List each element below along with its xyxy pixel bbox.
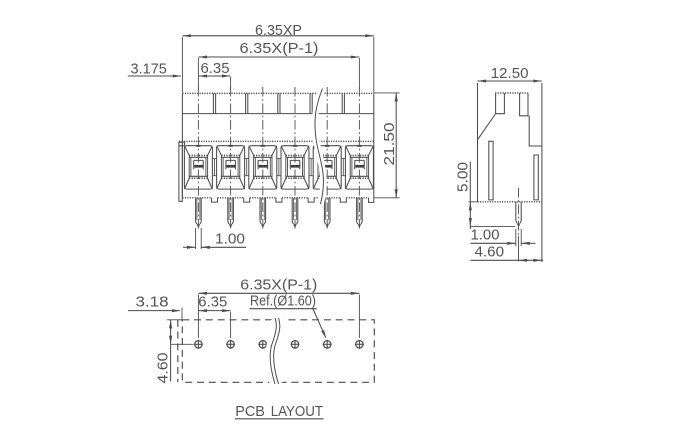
svg-text:4.60: 4.60 bbox=[155, 352, 171, 383]
svg-text:LAYOUT: LAYOUT bbox=[271, 404, 324, 420]
svg-text:6.35: 6.35 bbox=[198, 295, 227, 311]
svg-text:5.00: 5.00 bbox=[455, 162, 471, 192]
svg-text:3.18: 3.18 bbox=[136, 295, 169, 311]
svg-text:3.175: 3.175 bbox=[131, 61, 167, 77]
svg-text:6.35XP: 6.35XP bbox=[255, 23, 302, 39]
svg-text:4.60: 4.60 bbox=[475, 245, 505, 261]
svg-text:PCB: PCB bbox=[235, 404, 265, 420]
svg-text:1.00: 1.00 bbox=[215, 232, 245, 248]
svg-text:6.35X(P-1): 6.35X(P-1) bbox=[240, 277, 317, 293]
svg-text:12.50: 12.50 bbox=[491, 66, 529, 82]
svg-text:1.00: 1.00 bbox=[471, 227, 500, 243]
svg-text:21.50: 21.50 bbox=[382, 122, 398, 165]
svg-text:Ref.(Ø1.60): Ref.(Ø1.60) bbox=[250, 294, 316, 310]
svg-text:6.35: 6.35 bbox=[201, 61, 230, 77]
svg-text:6.35X(P-1): 6.35X(P-1) bbox=[240, 41, 319, 57]
